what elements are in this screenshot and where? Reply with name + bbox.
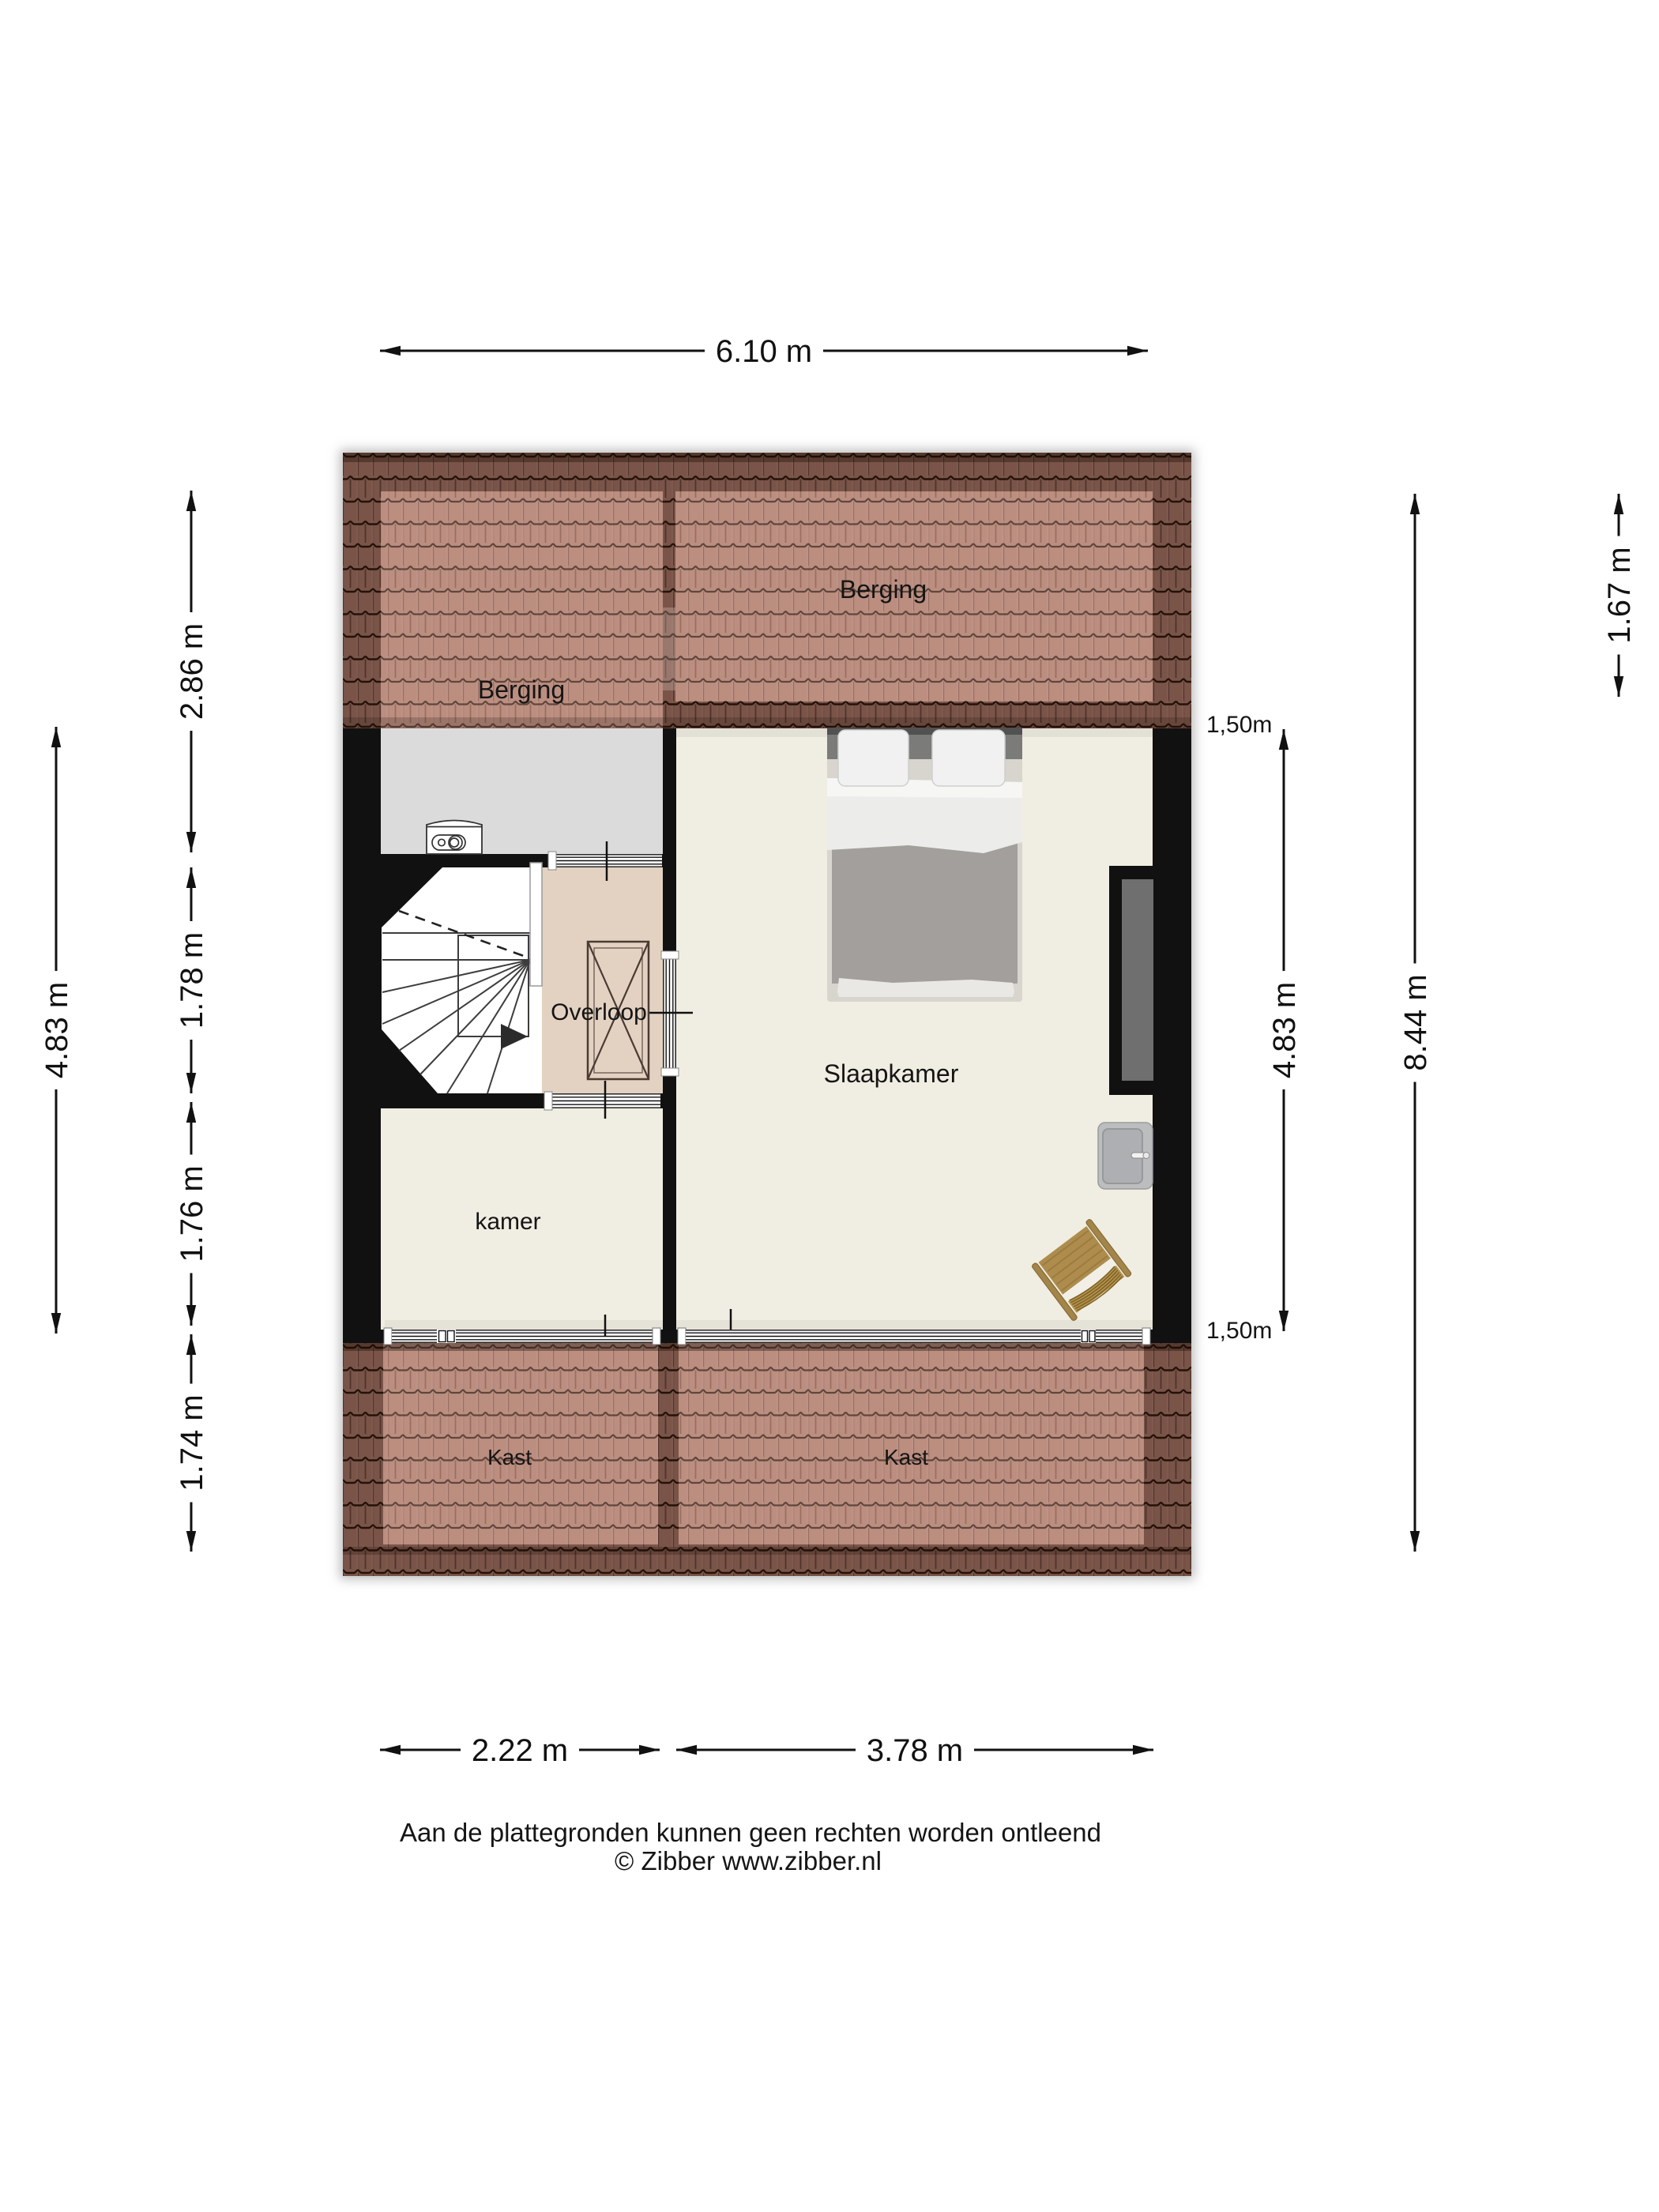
svg-text:Aan de plattegronden kunnen ge: Aan de plattegronden kunnen geen rechten… [400,1818,1101,1847]
svg-text:6.10 m: 6.10 m [716,334,812,369]
svg-text:© Zibber www.zibber.nl: © Zibber www.zibber.nl [615,1846,882,1875]
svg-text:8.44 m: 8.44 m [1398,974,1433,1070]
svg-text:2.22 m: 2.22 m [472,1733,568,1768]
svg-text:2.86 m: 2.86 m [175,623,209,720]
svg-text:1.76 m: 1.76 m [175,1165,209,1262]
svg-text:3.78 m: 3.78 m [867,1733,963,1768]
svg-text:4.83 m: 4.83 m [1267,982,1302,1078]
svg-text:Overloop: Overloop [551,999,647,1025]
svg-text:Berging: Berging [478,675,565,704]
svg-text:1.67 m: 1.67 m [1602,547,1637,643]
svg-text:Kast: Kast [487,1445,532,1469]
svg-text:1.74 m: 1.74 m [175,1394,209,1491]
svg-text:1,50m: 1,50m [1206,712,1272,738]
svg-text:1.78 m: 1.78 m [175,932,209,1029]
svg-text:Berging: Berging [840,575,927,604]
svg-text:4.83 m: 4.83 m [39,982,74,1078]
svg-text:kamer: kamer [475,1209,540,1235]
svg-text:Kast: Kast [884,1445,928,1469]
svg-text:1,50m: 1,50m [1206,1318,1272,1344]
svg-text:Slaapkamer: Slaapkamer [824,1059,959,1088]
